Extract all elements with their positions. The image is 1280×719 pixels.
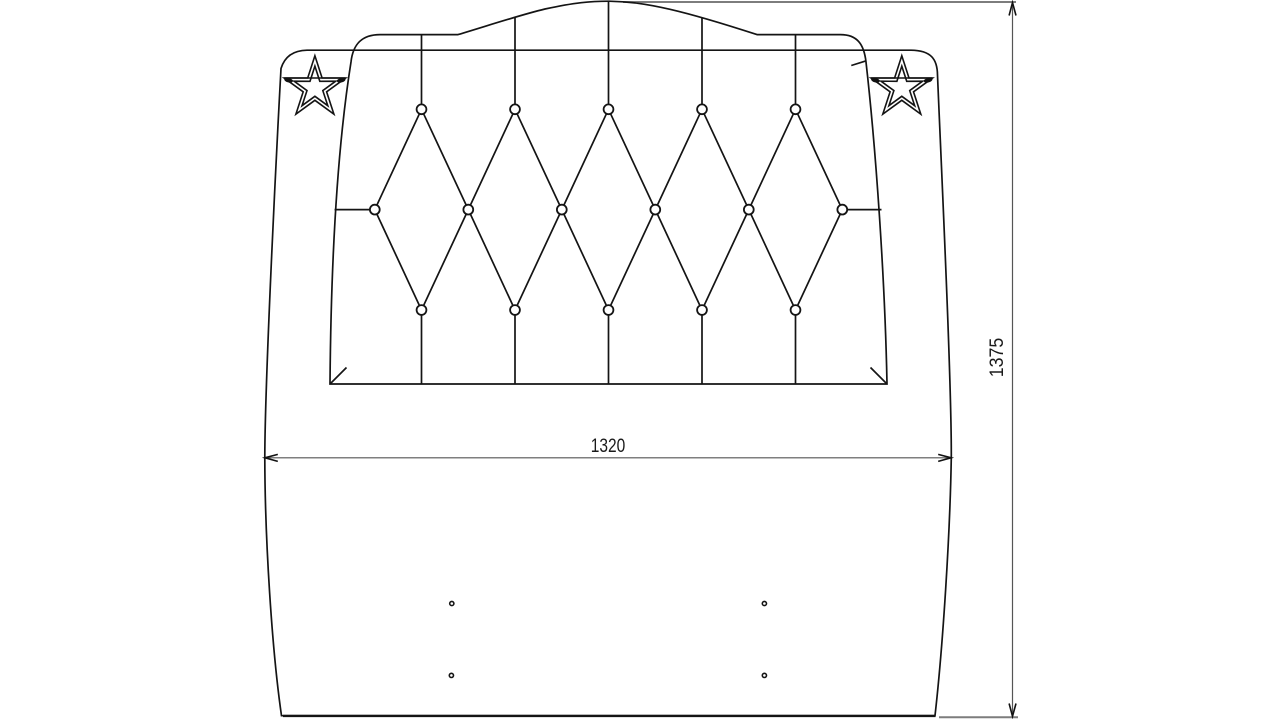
svg-text:1375: 1375 bbox=[986, 338, 1008, 378]
svg-text:1320: 1320 bbox=[591, 435, 626, 457]
